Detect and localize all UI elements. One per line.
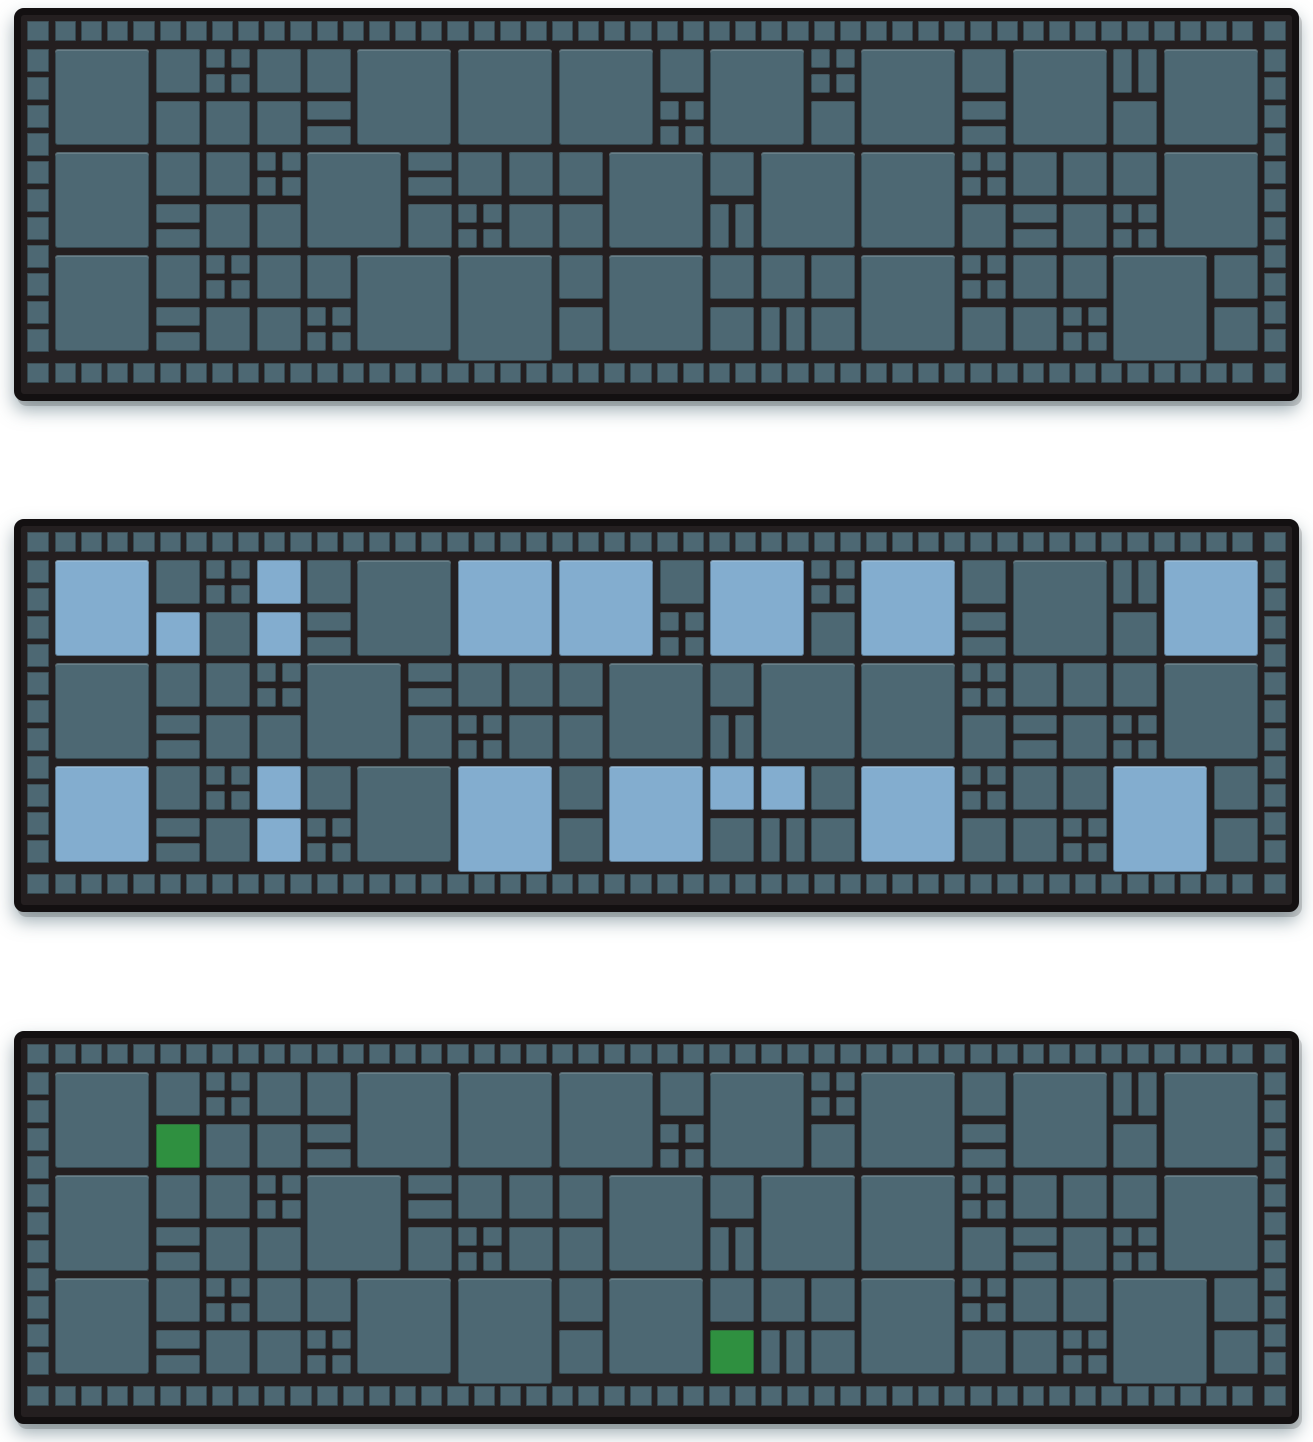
- edge-tile[interactable]: [1232, 874, 1253, 894]
- mosaic-tile-large[interactable]: [861, 49, 955, 145]
- mosaic-tile[interactable]: [962, 101, 1006, 120]
- edge-tile[interactable]: [944, 1044, 965, 1064]
- edge-tile[interactable]: [369, 874, 390, 894]
- edge-tile[interactable]: [578, 363, 599, 383]
- mosaic-tile[interactable]: [408, 1227, 452, 1271]
- mosaic-tile[interactable]: [206, 791, 225, 810]
- edge-tile[interactable]: [683, 532, 704, 552]
- edge-tile[interactable]: [918, 363, 939, 383]
- mosaic-tile[interactable]: [962, 152, 981, 171]
- edge-tile[interactable]: [160, 532, 181, 552]
- edge-tile[interactable]: [787, 363, 808, 383]
- edge-tile[interactable]: [1264, 700, 1286, 723]
- edge-tile[interactable]: [892, 363, 913, 383]
- edge-tile[interactable]: [369, 363, 390, 383]
- edge-tile[interactable]: [27, 644, 49, 667]
- edge-tile[interactable]: [735, 1044, 756, 1064]
- edge-tile[interactable]: [892, 1386, 913, 1406]
- mosaic-tile[interactable]: [987, 663, 1006, 682]
- mosaic-tile-large[interactable]: [55, 255, 149, 351]
- edge-tile[interactable]: [447, 532, 468, 552]
- edge-tile[interactable]: [107, 532, 128, 552]
- mosaic-tile[interactable]: [1013, 1278, 1057, 1322]
- edge-tile[interactable]: [1264, 49, 1286, 72]
- mosaic-tile[interactable]: [1063, 843, 1082, 862]
- mosaic-tile[interactable]: [458, 663, 502, 707]
- mosaic-tile[interactable]: [685, 101, 704, 120]
- mosaic-tile[interactable]: [1113, 715, 1132, 734]
- edge-tile[interactable]: [1154, 1386, 1175, 1406]
- mosaic-tile[interactable]: [1138, 715, 1157, 734]
- mosaic-tile[interactable]: [408, 1175, 452, 1194]
- mosaic-tile[interactable]: [1113, 101, 1157, 145]
- mosaic-tile-large[interactable]: [1164, 1072, 1258, 1168]
- edge-tile[interactable]: [238, 1386, 259, 1406]
- edge-tile[interactable]: [395, 532, 416, 552]
- mosaic-tile[interactable]: [811, 560, 830, 579]
- mosaic-tile[interactable]: [1013, 255, 1057, 299]
- edge-tile[interactable]: [238, 532, 259, 552]
- edge-tile[interactable]: [186, 1386, 207, 1406]
- highlighted-tile-blue[interactable]: [1164, 560, 1258, 656]
- mosaic-tile[interactable]: [458, 1252, 477, 1271]
- edge-tile[interactable]: [27, 49, 49, 72]
- mosaic-tile[interactable]: [156, 1072, 200, 1116]
- mosaic-tile-large[interactable]: [761, 1175, 855, 1271]
- mosaic-tile[interactable]: [559, 818, 603, 862]
- edge-tile[interactable]: [474, 874, 495, 894]
- mosaic-tile[interactable]: [1013, 663, 1057, 707]
- edge-tile[interactable]: [395, 874, 416, 894]
- mosaic-tile[interactable]: [257, 715, 301, 759]
- edge-tile[interactable]: [892, 21, 913, 41]
- mosaic-tile[interactable]: [307, 101, 351, 120]
- mosaic-tile[interactable]: [156, 843, 200, 862]
- mosaic-tile[interactable]: [156, 1330, 200, 1349]
- edge-tile[interactable]: [447, 21, 468, 41]
- edge-tile[interactable]: [1264, 1072, 1286, 1095]
- mosaic-tile[interactable]: [231, 1278, 250, 1297]
- mosaic-tile[interactable]: [156, 229, 200, 248]
- edge-tile[interactable]: [290, 21, 311, 41]
- mosaic-tile[interactable]: [1063, 1175, 1107, 1219]
- edge-tile[interactable]: [1264, 161, 1286, 184]
- mosaic-tile[interactable]: [1013, 1252, 1057, 1271]
- mosaic-tile[interactable]: [156, 560, 200, 604]
- edge-tile[interactable]: [604, 874, 625, 894]
- mosaic-tile-large[interactable]: [861, 255, 955, 351]
- mosaic-tile[interactable]: [987, 255, 1006, 274]
- mosaic-tile[interactable]: [1063, 152, 1107, 196]
- mosaic-tile-large[interactable]: [1164, 152, 1258, 248]
- mosaic-tile[interactable]: [962, 1124, 1006, 1143]
- edge-tile[interactable]: [264, 532, 285, 552]
- mosaic-tile[interactable]: [1214, 766, 1258, 810]
- mosaic-tile[interactable]: [231, 280, 250, 299]
- edge-tile[interactable]: [500, 1386, 521, 1406]
- edge-tile[interactable]: [1264, 1100, 1286, 1123]
- mosaic-tile[interactable]: [257, 307, 301, 351]
- edge-tile[interactable]: [1264, 1240, 1286, 1263]
- mosaic-tile[interactable]: [761, 307, 780, 351]
- mosaic-tile[interactable]: [307, 1124, 351, 1143]
- edge-tile[interactable]: [474, 532, 495, 552]
- edge-tile[interactable]: [526, 874, 547, 894]
- edge-tile[interactable]: [500, 532, 521, 552]
- mosaic-tile[interactable]: [1113, 1252, 1132, 1271]
- mosaic-tile[interactable]: [156, 152, 200, 196]
- mosaic-tile[interactable]: [458, 229, 477, 248]
- edge-tile[interactable]: [290, 363, 311, 383]
- mosaic-tile[interactable]: [786, 307, 805, 351]
- edge-tile[interactable]: [604, 21, 625, 41]
- mosaic-tile[interactable]: [282, 177, 301, 196]
- highlighted-tile-blue[interactable]: [861, 766, 955, 862]
- mosaic-tile[interactable]: [1113, 560, 1132, 604]
- mosaic-tile-large[interactable]: [861, 1175, 955, 1271]
- edge-tile[interactable]: [630, 1044, 651, 1064]
- edge-tile[interactable]: [1232, 21, 1253, 41]
- mosaic-tile[interactable]: [307, 126, 351, 145]
- edge-tile[interactable]: [107, 363, 128, 383]
- mosaic-tile[interactable]: [231, 766, 250, 785]
- edge-tile[interactable]: [814, 532, 835, 552]
- mosaic-tile[interactable]: [1088, 1355, 1107, 1374]
- mosaic-tile[interactable]: [332, 307, 351, 326]
- edge-tile[interactable]: [918, 1386, 939, 1406]
- mosaic-tile[interactable]: [710, 255, 754, 299]
- edge-tile[interactable]: [1049, 1386, 1070, 1406]
- mosaic-tile[interactable]: [257, 49, 301, 93]
- mosaic-tile[interactable]: [559, 1175, 603, 1219]
- mosaic-tile[interactable]: [962, 560, 1006, 604]
- edge-tile[interactable]: [604, 1386, 625, 1406]
- edge-tile[interactable]: [866, 1386, 887, 1406]
- edge-tile[interactable]: [186, 532, 207, 552]
- mosaic-tile[interactable]: [836, 560, 855, 579]
- mosaic-tile[interactable]: [1113, 1124, 1157, 1168]
- edge-tile[interactable]: [604, 363, 625, 383]
- edge-tile[interactable]: [840, 1386, 861, 1406]
- edge-tile[interactable]: [1075, 363, 1096, 383]
- mosaic-tile[interactable]: [509, 204, 553, 248]
- selected-tile-green[interactable]: [156, 1124, 200, 1168]
- edge-tile[interactable]: [369, 21, 390, 41]
- edge-tile[interactable]: [1101, 874, 1122, 894]
- mosaic-tile[interactable]: [1214, 307, 1258, 351]
- edge-tile[interactable]: [474, 1044, 495, 1064]
- edge-tile[interactable]: [630, 532, 651, 552]
- mosaic-tile[interactable]: [206, 74, 225, 93]
- mosaic-tile[interactable]: [1138, 229, 1157, 248]
- mosaic-tile[interactable]: [332, 1330, 351, 1349]
- mosaic-tile[interactable]: [408, 152, 452, 171]
- mosaic-tile[interactable]: [836, 1072, 855, 1091]
- highlighted-tile-blue[interactable]: [1113, 766, 1207, 872]
- mosaic-tile[interactable]: [408, 715, 452, 759]
- mosaic-tile[interactable]: [156, 818, 200, 837]
- edge-tile[interactable]: [526, 363, 547, 383]
- edge-tile[interactable]: [1232, 1386, 1253, 1406]
- edge-tile[interactable]: [421, 21, 442, 41]
- mosaic-tile-large[interactable]: [458, 255, 552, 361]
- edge-tile[interactable]: [27, 273, 49, 296]
- mosaic-tile-large[interactable]: [609, 663, 703, 759]
- edge-tile[interactable]: [395, 1386, 416, 1406]
- edge-tile[interactable]: [1127, 21, 1148, 41]
- mosaic-tile[interactable]: [710, 307, 754, 351]
- corner-tile[interactable]: [27, 1386, 49, 1406]
- mosaic-tile[interactable]: [660, 49, 704, 93]
- mosaic-tile[interactable]: [483, 715, 502, 734]
- edge-tile[interactable]: [421, 363, 442, 383]
- corner-tile[interactable]: [1264, 21, 1286, 41]
- edge-tile[interactable]: [343, 532, 364, 552]
- mosaic-tile[interactable]: [206, 1124, 250, 1168]
- mosaic-tile[interactable]: [811, 307, 855, 351]
- mosaic-tile[interactable]: [206, 307, 250, 351]
- mosaic-tile[interactable]: [1138, 1252, 1157, 1271]
- edge-tile[interactable]: [133, 1044, 154, 1064]
- edge-tile[interactable]: [264, 21, 285, 41]
- mosaic-tile[interactable]: [1214, 818, 1258, 862]
- edge-tile[interactable]: [997, 874, 1018, 894]
- edge-tile[interactable]: [1101, 1386, 1122, 1406]
- mosaic-tile[interactable]: [307, 49, 351, 93]
- mosaic-tile[interactable]: [962, 1149, 1006, 1168]
- mosaic-tile[interactable]: [962, 663, 981, 682]
- mosaic-tile[interactable]: [332, 1355, 351, 1374]
- mosaic-tile-large[interactable]: [357, 49, 451, 145]
- mosaic-tile[interactable]: [307, 1355, 326, 1374]
- mosaic-tile[interactable]: [987, 177, 1006, 196]
- edge-tile[interactable]: [814, 1044, 835, 1064]
- edge-tile[interactable]: [1264, 301, 1286, 324]
- edge-tile[interactable]: [1180, 21, 1201, 41]
- mosaic-tile[interactable]: [962, 204, 1006, 248]
- mosaic-tile[interactable]: [257, 1124, 301, 1168]
- mosaic-tile[interactable]: [685, 1124, 704, 1143]
- edge-tile[interactable]: [343, 1044, 364, 1064]
- mosaic-tile[interactable]: [231, 585, 250, 604]
- mosaic-tile[interactable]: [811, 49, 830, 68]
- corner-tile[interactable]: [1264, 363, 1286, 383]
- edge-tile[interactable]: [27, 784, 49, 807]
- mosaic-tile-large[interactable]: [458, 49, 552, 145]
- mosaic-tile[interactable]: [282, 1175, 301, 1194]
- edge-tile[interactable]: [474, 363, 495, 383]
- mosaic-tile[interactable]: [408, 177, 452, 196]
- edge-tile[interactable]: [866, 874, 887, 894]
- mosaic-tile[interactable]: [559, 255, 603, 299]
- edge-tile[interactable]: [27, 840, 49, 863]
- edge-tile[interactable]: [578, 532, 599, 552]
- mosaic-tile[interactable]: [987, 280, 1006, 299]
- edge-tile[interactable]: [997, 532, 1018, 552]
- edge-tile[interactable]: [1101, 363, 1122, 383]
- edge-tile[interactable]: [160, 1044, 181, 1064]
- edge-tile[interactable]: [395, 363, 416, 383]
- mosaic-tile[interactable]: [1013, 715, 1057, 734]
- edge-tile[interactable]: [918, 1044, 939, 1064]
- edge-tile[interactable]: [1101, 21, 1122, 41]
- edge-tile[interactable]: [761, 874, 782, 894]
- edge-tile[interactable]: [186, 21, 207, 41]
- mosaic-tile[interactable]: [458, 1227, 477, 1246]
- edge-tile[interactable]: [578, 1044, 599, 1064]
- edge-tile[interactable]: [317, 532, 338, 552]
- mosaic-tile[interactable]: [962, 766, 981, 785]
- edge-tile[interactable]: [81, 363, 102, 383]
- mosaic-tile[interactable]: [710, 1227, 729, 1271]
- edge-tile[interactable]: [1180, 1386, 1201, 1406]
- edge-tile[interactable]: [27, 245, 49, 268]
- corner-tile[interactable]: [1264, 874, 1286, 894]
- mosaic-tile[interactable]: [307, 1149, 351, 1168]
- mosaic-tile[interactable]: [206, 612, 250, 656]
- mosaic-tile[interactable]: [1063, 1227, 1107, 1271]
- edge-tile[interactable]: [1049, 21, 1070, 41]
- mosaic-tile[interactable]: [987, 1175, 1006, 1194]
- edge-tile[interactable]: [395, 21, 416, 41]
- edge-tile[interactable]: [27, 1240, 49, 1263]
- mosaic-tile[interactable]: [1063, 766, 1107, 810]
- edge-tile[interactable]: [447, 363, 468, 383]
- edge-tile[interactable]: [133, 363, 154, 383]
- edge-tile[interactable]: [709, 532, 730, 552]
- mosaic-tile[interactable]: [962, 1175, 981, 1194]
- mosaic-tile[interactable]: [509, 663, 553, 707]
- highlighted-tile-blue[interactable]: [559, 560, 653, 656]
- mosaic-tile[interactable]: [559, 1330, 603, 1374]
- edge-tile[interactable]: [186, 363, 207, 383]
- edge-tile[interactable]: [683, 874, 704, 894]
- edge-tile[interactable]: [657, 532, 678, 552]
- mosaic-tile-large[interactable]: [609, 255, 703, 351]
- mosaic-tile[interactable]: [1138, 560, 1157, 604]
- edge-tile[interactable]: [27, 1184, 49, 1207]
- edge-tile[interactable]: [1023, 21, 1044, 41]
- highlighted-tile-blue[interactable]: [257, 818, 301, 862]
- edge-tile[interactable]: [1049, 874, 1070, 894]
- mosaic-tile-large[interactable]: [559, 49, 653, 145]
- mosaic-tile[interactable]: [156, 1278, 200, 1322]
- mosaic-tile[interactable]: [206, 255, 225, 274]
- mosaic-tile[interactable]: [231, 791, 250, 810]
- edge-tile[interactable]: [944, 21, 965, 41]
- mosaic-tile[interactable]: [156, 307, 200, 326]
- mosaic-tile[interactable]: [660, 612, 679, 631]
- edge-tile[interactable]: [290, 1386, 311, 1406]
- mosaic-tile[interactable]: [156, 663, 200, 707]
- mosaic-tile[interactable]: [156, 766, 200, 810]
- mosaic-tile-large[interactable]: [710, 1072, 804, 1168]
- highlighted-tile-blue[interactable]: [156, 612, 200, 656]
- mosaic-tile-large[interactable]: [761, 152, 855, 248]
- edge-tile[interactable]: [55, 21, 76, 41]
- edge-tile[interactable]: [1232, 1044, 1253, 1064]
- mosaic-tile[interactable]: [282, 663, 301, 682]
- mosaic-tile-large[interactable]: [609, 152, 703, 248]
- mosaic-tile-large[interactable]: [1013, 560, 1107, 656]
- mosaic-tile[interactable]: [962, 1330, 1006, 1374]
- mosaic-tile[interactable]: [156, 1227, 200, 1246]
- mosaic-tile[interactable]: [559, 1278, 603, 1322]
- mosaic-tile[interactable]: [660, 101, 679, 120]
- mosaic-tile[interactable]: [1013, 152, 1057, 196]
- mosaic-tile[interactable]: [1013, 766, 1057, 810]
- mosaic-tile[interactable]: [1013, 307, 1057, 351]
- mosaic-tile[interactable]: [1113, 612, 1157, 656]
- edge-tile[interactable]: [683, 21, 704, 41]
- mosaic-tile[interactable]: [1088, 1330, 1107, 1349]
- edge-tile[interactable]: [1264, 189, 1286, 212]
- mosaic-tile-large[interactable]: [1013, 1072, 1107, 1168]
- edge-tile[interactable]: [630, 363, 651, 383]
- edge-tile[interactable]: [500, 363, 521, 383]
- mosaic-tile[interactable]: [811, 1330, 855, 1374]
- mosaic-tile[interactable]: [206, 1227, 250, 1271]
- edge-tile[interactable]: [735, 363, 756, 383]
- mosaic-tile[interactable]: [307, 1278, 351, 1322]
- edge-tile[interactable]: [683, 1044, 704, 1064]
- mosaic-tile[interactable]: [257, 152, 276, 171]
- mosaic-tile[interactable]: [559, 204, 603, 248]
- mosaic-tile[interactable]: [408, 688, 452, 707]
- mosaic-tile-large[interactable]: [55, 1072, 149, 1168]
- mosaic-tile[interactable]: [206, 1303, 225, 1322]
- edge-tile[interactable]: [395, 1044, 416, 1064]
- mosaic-tile[interactable]: [1013, 204, 1057, 223]
- mosaic-tile[interactable]: [1138, 1072, 1157, 1116]
- mosaic-tile[interactable]: [257, 1227, 301, 1271]
- edge-tile[interactable]: [160, 874, 181, 894]
- mosaic-tile[interactable]: [458, 715, 477, 734]
- edge-tile[interactable]: [212, 21, 233, 41]
- edge-tile[interactable]: [27, 616, 49, 639]
- edge-tile[interactable]: [1264, 728, 1286, 751]
- edge-tile[interactable]: [1023, 1044, 1044, 1064]
- mosaic-tile[interactable]: [1088, 818, 1107, 837]
- edge-tile[interactable]: [970, 874, 991, 894]
- mosaic-tile[interactable]: [559, 152, 603, 196]
- mosaic-tile[interactable]: [559, 766, 603, 810]
- edge-tile[interactable]: [970, 21, 991, 41]
- mosaic-tile[interactable]: [962, 49, 1006, 93]
- mosaic-tile[interactable]: [660, 1072, 704, 1116]
- mosaic-tile[interactable]: [836, 49, 855, 68]
- mosaic-tile[interactable]: [1013, 818, 1057, 862]
- mosaic-tile[interactable]: [156, 1355, 200, 1374]
- edge-tile[interactable]: [526, 1044, 547, 1064]
- corner-tile[interactable]: [27, 1044, 49, 1064]
- mosaic-tile[interactable]: [761, 1330, 780, 1374]
- edge-tile[interactable]: [997, 1386, 1018, 1406]
- edge-tile[interactable]: [735, 21, 756, 41]
- mosaic-tile-large[interactable]: [1113, 255, 1207, 361]
- mosaic-tile[interactable]: [559, 1227, 603, 1271]
- mosaic-tile[interactable]: [257, 101, 301, 145]
- mosaic-tile[interactable]: [761, 818, 780, 862]
- edge-tile[interactable]: [683, 363, 704, 383]
- mosaic-tile[interactable]: [1113, 229, 1132, 248]
- edge-tile[interactable]: [1264, 784, 1286, 807]
- edge-tile[interactable]: [27, 301, 49, 324]
- edge-tile[interactable]: [1127, 532, 1148, 552]
- edge-tile[interactable]: [866, 363, 887, 383]
- edge-tile[interactable]: [160, 21, 181, 41]
- edge-tile[interactable]: [474, 1386, 495, 1406]
